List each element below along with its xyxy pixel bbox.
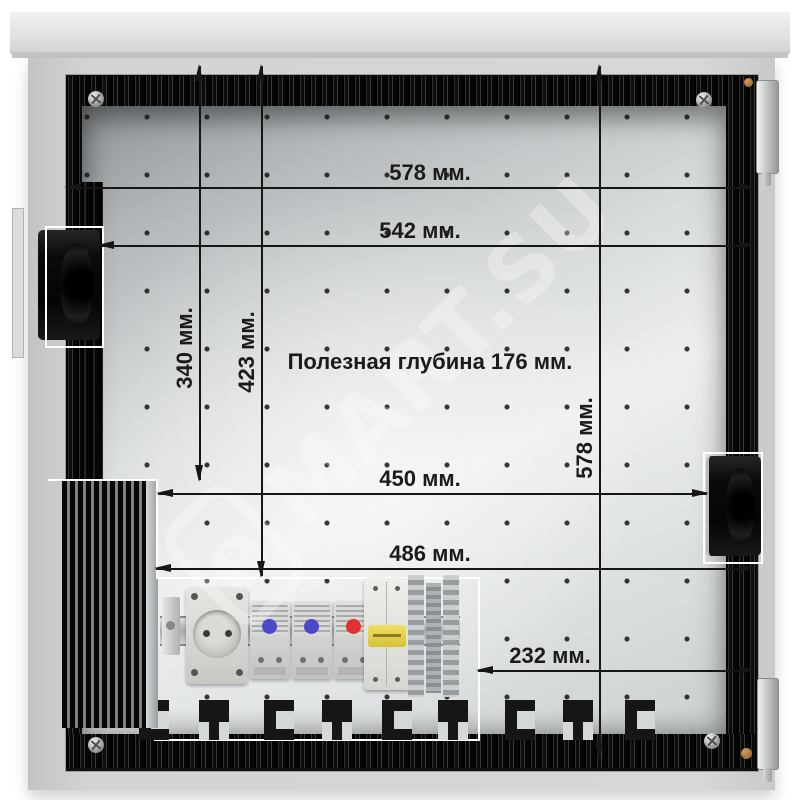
terminal-block-left	[408, 575, 424, 697]
cable-knockout	[563, 700, 593, 740]
thermostat-screw	[342, 657, 348, 663]
dim-label-578-right: 578 мм.	[572, 397, 598, 478]
right-fan-highlight-box	[703, 452, 763, 564]
socket-screw	[236, 593, 243, 600]
circuit-breaker	[364, 578, 410, 690]
dim-line-232	[478, 670, 754, 672]
socket-screw	[236, 669, 243, 676]
door-hinge-top-pin	[762, 172, 771, 186]
plate-screw-bottom-right	[704, 733, 720, 749]
dim-label-232: 232 мм.	[509, 643, 590, 669]
socket-hole-left	[203, 630, 210, 637]
breaker-terminal-mark	[373, 586, 378, 591]
door-hinge-bottom	[757, 678, 779, 770]
thermostat-label-strip	[296, 667, 328, 675]
door-hinge-bottom-pin	[763, 768, 772, 782]
breaker-terminal-mark	[395, 586, 400, 591]
socket-hole-right	[225, 630, 232, 637]
heatsink	[62, 481, 158, 728]
ground-bolt-bottom	[741, 748, 752, 759]
dim-label-542: 542 мм.	[379, 218, 460, 244]
breaker-terminal-mark	[395, 677, 400, 682]
cable-knockout	[505, 700, 535, 740]
heatsink-highlight-line-top	[48, 479, 158, 481]
socket-recess	[193, 610, 241, 658]
side-panel-latch	[12, 208, 24, 358]
dim-line-423	[261, 66, 263, 576]
dim-line-542	[99, 245, 754, 247]
socket-screw	[191, 593, 198, 600]
left-fan-highlight-box	[45, 226, 104, 348]
thermostat-knob-blue	[304, 619, 319, 634]
plate-screw-top-left	[88, 91, 104, 107]
thermostat-screw	[300, 657, 306, 663]
breaker-terminal-mark	[373, 677, 378, 682]
thermostat-screw	[276, 657, 282, 663]
terminal-block-middle	[426, 583, 441, 693]
cable-knockout	[264, 700, 294, 740]
cable-knockout	[322, 700, 352, 740]
cable-knockout	[382, 700, 412, 740]
dim-label-450: 450 мм.	[379, 466, 460, 492]
cabinet-product-image: e MART.SU 578 мм. 542 мм. 450 мм. 486 мм…	[0, 0, 800, 800]
socket-screw	[191, 669, 198, 676]
ground-bolt-top	[744, 78, 753, 87]
thermostat-knob-red	[346, 619, 361, 634]
terminal-block-right	[443, 575, 459, 697]
dim-label-578-top: 578 мм.	[389, 160, 470, 186]
thermostat-1	[250, 601, 290, 679]
cable-knockout	[625, 700, 655, 740]
dim-label-423: 423 мм.	[234, 311, 260, 392]
thermostat-label-strip	[254, 667, 286, 675]
din-end-clamp	[162, 597, 180, 655]
breaker-lever-yellow	[368, 625, 406, 647]
thermostat-screw	[258, 657, 264, 663]
dim-line-340	[199, 66, 201, 480]
gasket-top	[67, 76, 755, 106]
dim-line-578-right	[599, 66, 601, 758]
gasket-right	[726, 76, 756, 768]
schuko-socket	[186, 587, 248, 684]
door-hinge-top	[756, 80, 779, 174]
thermostat-2	[292, 601, 332, 679]
dim-line-486	[156, 568, 755, 570]
cable-knockout	[438, 700, 468, 740]
useful-depth-note: Полезная глубина 176 мм.	[288, 349, 573, 375]
plate-screw-bottom-left	[88, 737, 104, 753]
dim-label-486: 486 мм.	[389, 541, 470, 567]
thermostat-screw	[318, 657, 324, 663]
dim-line-578-top	[66, 187, 754, 189]
dim-label-340: 340 мм.	[172, 307, 198, 388]
plate-screw-top-right	[696, 92, 712, 108]
rain-canopy	[10, 12, 790, 54]
thermostat-knob-blue	[262, 619, 277, 634]
cable-knockout	[199, 700, 229, 740]
dim-line-450	[158, 493, 707, 495]
